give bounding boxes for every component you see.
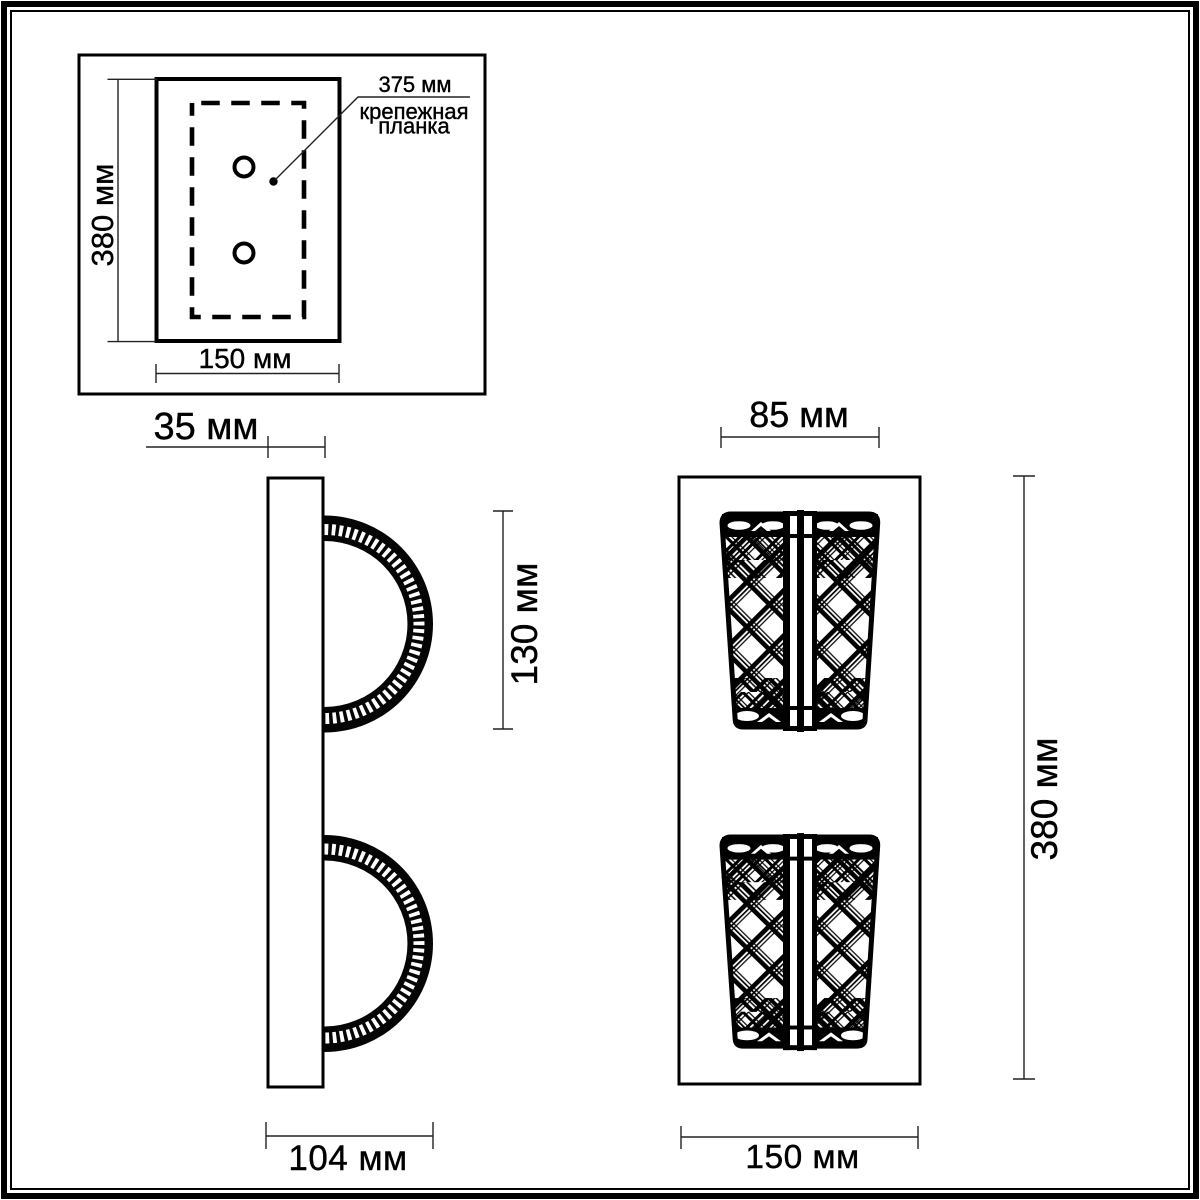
svg-text:планка: планка <box>378 114 450 139</box>
svg-text:150 мм: 150 мм <box>199 343 292 374</box>
svg-text:150 мм: 150 мм <box>745 1139 859 1176</box>
svg-text:375 мм: 375 мм <box>378 72 451 97</box>
svg-text:35 мм: 35 мм <box>153 406 258 448</box>
svg-text:380 мм: 380 мм <box>85 164 120 267</box>
svg-text:85 мм: 85 мм <box>749 394 849 435</box>
svg-text:104 мм: 104 мм <box>288 1139 407 1178</box>
svg-text:380 мм: 380 мм <box>1024 738 1065 861</box>
svg-text:130 мм: 130 мм <box>504 563 545 686</box>
